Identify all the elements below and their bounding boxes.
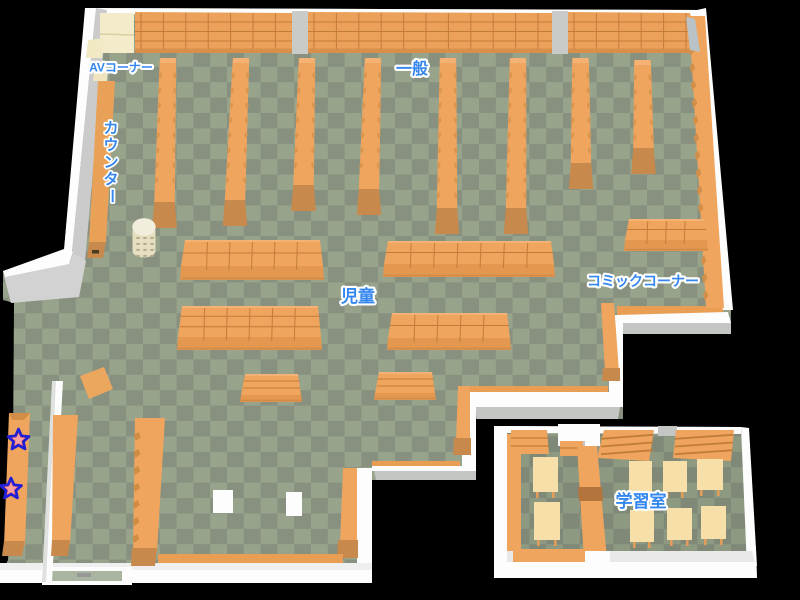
svg-text:ン: ン xyxy=(103,154,118,171)
svg-text:カ: カ xyxy=(103,120,118,137)
svg-text:ウ: ウ xyxy=(103,137,118,154)
svg-text:ー: ー xyxy=(103,188,120,203)
svg-text:学習室: 学習室 xyxy=(616,491,667,511)
svg-text:一般: 一般 xyxy=(396,59,428,78)
svg-text:AVコーナー: AVコーナー xyxy=(89,61,153,75)
svg-text:児童: 児童 xyxy=(340,286,375,306)
svg-text:タ: タ xyxy=(103,171,118,188)
svg-text:コミックコーナー: コミックコーナー xyxy=(587,273,699,289)
